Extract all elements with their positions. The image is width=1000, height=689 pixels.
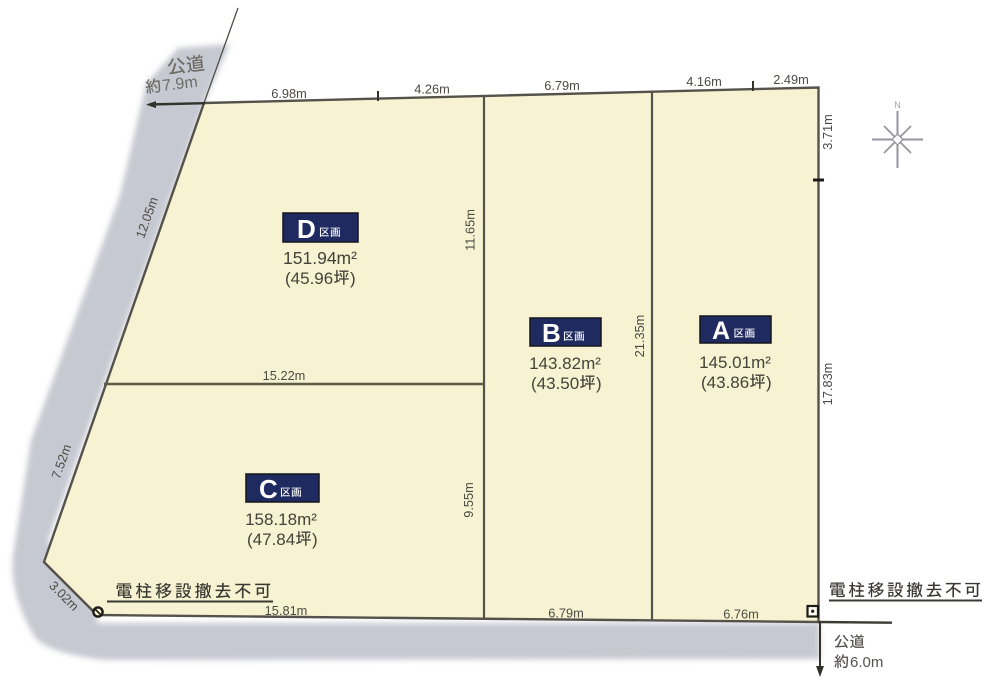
svg-text:151.94m²: 151.94m² — [283, 248, 357, 268]
svg-text:4.16m: 4.16m — [686, 74, 722, 89]
svg-text:15.22m: 15.22m — [263, 368, 306, 383]
svg-text:145.01m²: 145.01m² — [699, 353, 771, 372]
svg-text:6.76m: 6.76m — [723, 607, 759, 622]
svg-text:3.71m: 3.71m — [820, 114, 835, 150]
svg-text:B: B — [542, 318, 561, 348]
svg-text:(43.86: (43.86 — [701, 373, 749, 392]
svg-text:): ) — [312, 530, 318, 549]
svg-text:21.35m: 21.35m — [632, 315, 647, 358]
svg-text:11.65m: 11.65m — [463, 209, 478, 251]
svg-text:15.81m: 15.81m — [265, 603, 308, 618]
svg-text:D: D — [297, 214, 316, 244]
svg-text:4.26m: 4.26m — [414, 82, 450, 97]
svg-text:): ) — [766, 373, 772, 392]
svg-text:(45.96: (45.96 — [285, 269, 333, 288]
svg-text:): ) — [596, 374, 602, 393]
svg-text:9.55m: 9.55m — [461, 482, 476, 518]
svg-text:C: C — [259, 474, 278, 504]
svg-text:(43.50: (43.50 — [531, 374, 579, 393]
svg-text:143.82m²: 143.82m² — [529, 354, 601, 373]
svg-text:N: N — [894, 100, 901, 110]
svg-text:17.83m: 17.83m — [820, 363, 835, 406]
svg-text:): ) — [350, 269, 356, 288]
svg-text:(47.84: (47.84 — [247, 530, 295, 549]
svg-text:6.98m: 6.98m — [271, 86, 307, 101]
svg-text:A: A — [712, 317, 730, 345]
svg-text:6.79m: 6.79m — [548, 606, 584, 621]
svg-text:6.0m: 6.0m — [850, 654, 883, 671]
svg-text:6.79m: 6.79m — [544, 78, 580, 93]
svg-text:2.49m: 2.49m — [773, 72, 809, 87]
svg-text:158.18m²: 158.18m² — [245, 510, 317, 529]
